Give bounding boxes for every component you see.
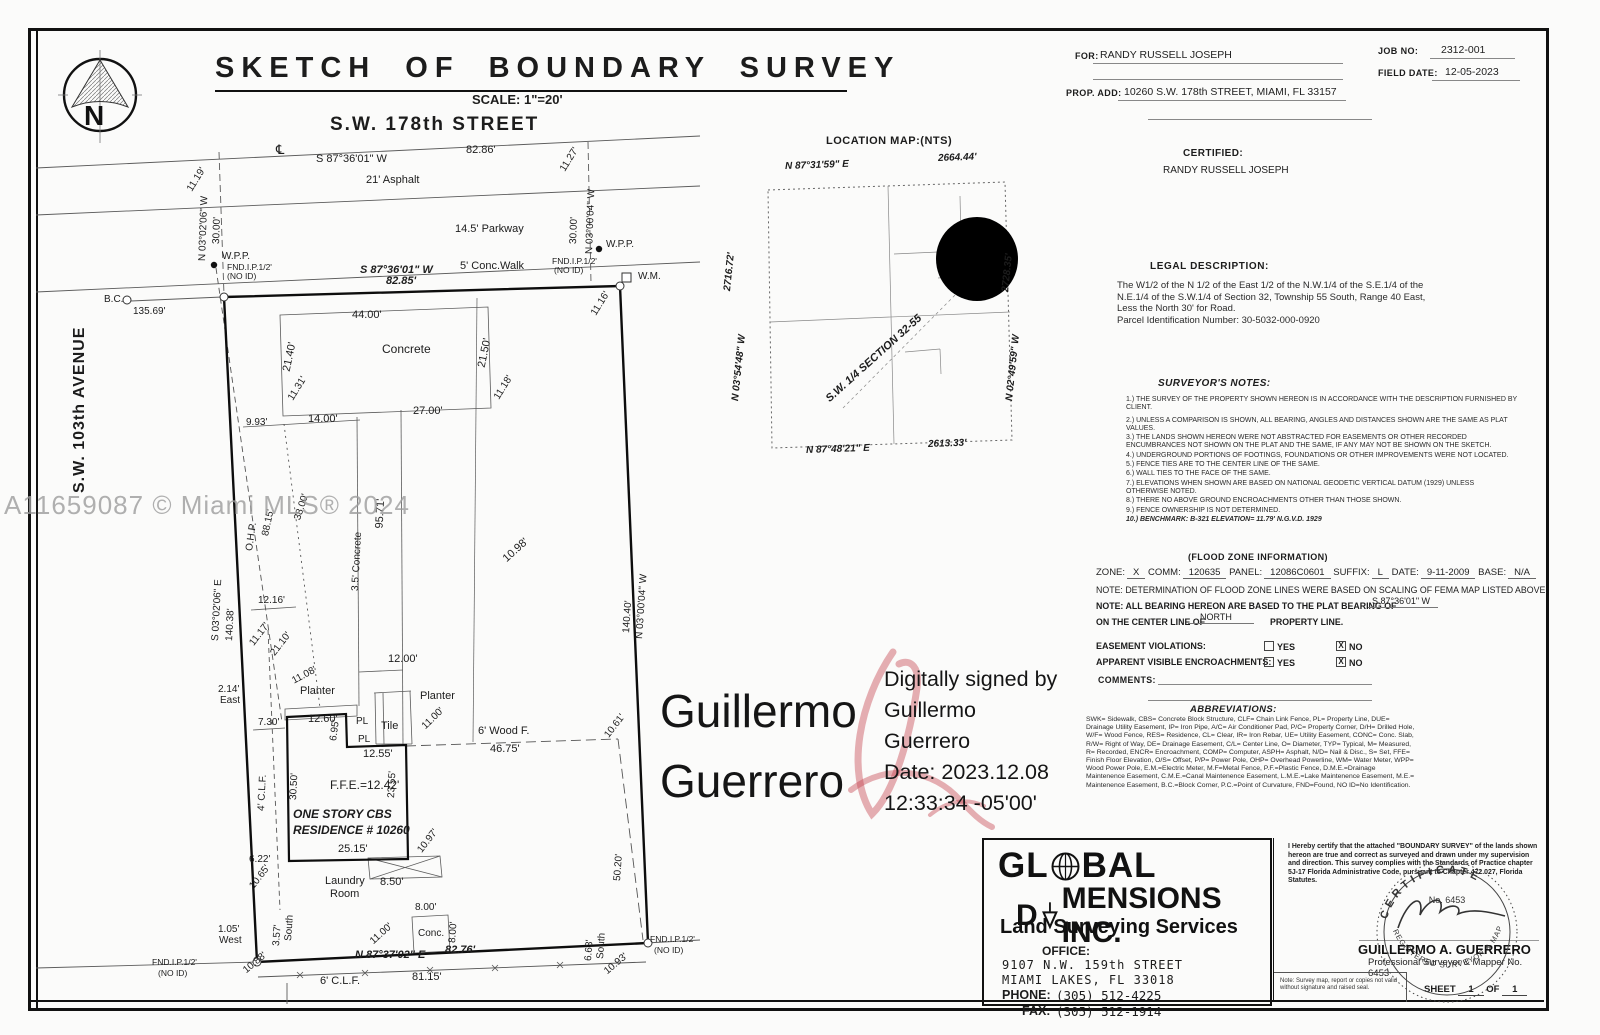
legal-line: Parcel Identification Number: 30-5032-00… (1117, 315, 1502, 327)
sketch-label: ONE STORY CBS (293, 808, 392, 820)
location-map-drawing (768, 182, 1018, 448)
company-name-gl: GL (998, 846, 1049, 886)
surveyor-note-item: 2.) UNLESS A COMPARISON IS SHOWN, ALL BE… (1126, 417, 1518, 434)
sketch-label: (NO ID) (158, 969, 187, 978)
sketch-label: 44.00' (352, 310, 382, 321)
company-box: GLBAL DMENSIONS INC. Land Surveying Serv… (982, 838, 1272, 1006)
sketch-label: N 87°37'02" E (355, 950, 425, 961)
sketch-label: 8.00' (415, 903, 436, 913)
surveyor-note-item: 9.) FENCE OWNERSHIP IS NOT DETERMINED. (1126, 507, 1518, 515)
job-underline (1430, 45, 1515, 59)
checkbox-row: APPARENT VISIBLE ENCROACHMENTS:YESXNO (1096, 657, 1416, 669)
checkbox-row: EASEMENT VIOLATIONS:YESXNO (1096, 641, 1416, 653)
flood-field-label: ZONE: (1096, 567, 1125, 578)
flood-field-value: N/A (1508, 567, 1536, 579)
sketch-label: 50.20' (613, 853, 625, 881)
certificate-box: I Hereby certify that the attached "BOUN… (1273, 838, 1544, 1002)
sketch-label: B.C. (104, 295, 123, 305)
flood-field-label: SUFFIX: (1333, 567, 1369, 578)
of-value: 1 (1502, 984, 1527, 996)
sketch-label: 14.00' (308, 414, 338, 425)
sketch-label: 12.55' (363, 749, 393, 760)
north-letter: N (84, 100, 104, 132)
fax-value: (305) 512-1914 (1056, 1004, 1161, 1019)
flood-field-label: BASE: (1478, 567, 1506, 578)
digital-signature-details: Digitally signed byGuillermoGuerreroDate… (884, 664, 1057, 819)
surveyor-name: GUILLERMO A. GUERRERO (1358, 942, 1531, 957)
surveyor-note-item: 1.) THE SURVEY OF THE PROPERTY SHOWN HER… (1126, 396, 1518, 413)
flood-centerline-suffix: PROPERTY LINE. (1270, 617, 1343, 627)
phone-label: PHONE: (1002, 988, 1051, 1002)
yes-label: YES (1277, 658, 1295, 668)
surveyor-note-item: 10.) BENCHMARK: B-321 ELEVATION= 11.79' … (1126, 516, 1518, 524)
surveyor-notes-list: 1.) THE SURVEY OF THE PROPERTY SHOWN HER… (1126, 396, 1518, 525)
office-address-line: 9107 N.W. 159th STREET (1002, 958, 1183, 973)
sketch-label: 30.00' (212, 216, 223, 243)
sheet-label: SHEET (1424, 984, 1456, 995)
sketch-label: 6' C.L.F. (320, 976, 360, 987)
sketch-label: 30.00' (569, 216, 580, 243)
sketch-label: 4' C.L.F. (257, 774, 269, 811)
digital-signature-detail-line: 12:33:34 -05'00' (884, 788, 1057, 819)
sketch-label: Conc. (418, 929, 444, 939)
digital-signature-detail-line: Guerrero (884, 726, 1057, 757)
for-blank-line (1093, 66, 1343, 80)
surveyor-note-item: 6.) WALL TIES TO THE FACE OF THE SAME. (1126, 470, 1518, 478)
flood-field-label: DATE: (1392, 567, 1419, 578)
sketch-label: S.W. 178th STREET (330, 115, 539, 134)
sketch-label: 14.5' Parkway (455, 224, 524, 235)
for-underline (1093, 50, 1343, 64)
scale-label: SCALE: 1"=20' (472, 92, 563, 107)
digital-signature-name-line1: Guillermo (660, 676, 857, 746)
office-label: OFFICE: (1042, 944, 1090, 958)
sketch-label: East (220, 696, 240, 706)
sketch-label: (NO ID) (554, 266, 583, 275)
sketch-label: Room (330, 889, 359, 900)
sketch-label: ℄ (276, 143, 284, 156)
comments-line2 (1148, 688, 1372, 701)
yes-checkbox (1264, 657, 1274, 667)
sketch-label: 3.57' (272, 924, 283, 946)
sketch-label: Tile (381, 721, 398, 732)
flood-fields-row: ZONE:X COMM:120635 PANEL:12086C0601 SUFF… (1096, 567, 1536, 578)
flood-field-value: 9-11-2009 (1421, 567, 1476, 579)
certified-value: RANDY RUSSELL JOSEPH (1163, 165, 1289, 176)
flood-field-label: COMM: (1148, 567, 1181, 578)
comments-line1 (1158, 672, 1372, 685)
sketch-label: 2.14' (218, 685, 239, 695)
sketch-label: 12.16' (258, 596, 285, 606)
flood-field-label: PANEL: (1229, 567, 1262, 578)
surveyor-note-item: 8.) THERE NO ABOVE GROUND ENCROACHMENTS … (1126, 497, 1518, 505)
sketch-label: Planter (420, 691, 455, 702)
sketch-label: 21' Asphalt (366, 175, 419, 186)
location-map-title: LOCATION MAP:(NTS) (826, 135, 952, 147)
no-checkbox: X (1336, 641, 1346, 651)
sketch-label: RESIDENCE # 10260 (293, 824, 410, 836)
comments-label: COMMENTS: (1098, 675, 1156, 685)
field-date-underline (1432, 67, 1520, 81)
yes-label: YES (1277, 642, 1295, 652)
sketch-label: W.M. (638, 272, 661, 282)
flood-field-value: X (1127, 567, 1145, 579)
page-title: SKETCH OF BOUNDARY SURVEY (215, 52, 847, 92)
legal-heading: LEGAL DESCRIPTION: (1150, 261, 1269, 272)
sketch-label: 135.69' (133, 307, 166, 317)
no-label: NO (1349, 658, 1363, 668)
sheet-row: SHEET 1 OF 1 (1424, 984, 1527, 995)
surveyor-note-item: 7.) ELEVATIONS WHEN SHOWN ARE BASED ON N… (1126, 480, 1518, 497)
sketch-label: 7.30' (258, 718, 279, 728)
digital-signature-detail-line: Guillermo (884, 695, 1057, 726)
sketch-label: South (596, 932, 608, 959)
note-divider-v (1406, 972, 1407, 1002)
sketch-label: 9.93' (246, 418, 267, 428)
prop-underline (1118, 87, 1346, 101)
office-address: 9107 N.W. 159th STREETMIAMI LAKES, FL 33… (1002, 958, 1183, 988)
sketch-label: FND.I.P.1/2' (152, 958, 197, 967)
sketch-label: 12.00' (388, 654, 418, 665)
flood-field-value: L (1372, 567, 1389, 579)
sketch-label: 8.00' (448, 921, 459, 943)
sketch-label: PL (358, 735, 370, 745)
yes-checkbox (1264, 641, 1274, 651)
flood-field-value: 120635 (1183, 567, 1227, 579)
office-address-line: MIAMI LAKES, FL 33018 (1002, 973, 1183, 988)
sketch-label: 6.63' (584, 939, 595, 961)
digital-signature-name: Guillermo Guerrero (660, 676, 857, 816)
sketch-label: 6.22' (249, 855, 270, 865)
surveyor-note-item: 4.) UNDERGROUND PORTIONS OF FOOTINGS, FO… (1126, 452, 1518, 460)
company-tagline: Land Surveying Services (1000, 916, 1238, 939)
company-name-bal: BAL (1082, 846, 1157, 886)
sketch-label: 1.05' (218, 925, 239, 935)
certificate-note: Note: Survey map, report or copies not v… (1280, 978, 1402, 992)
abbreviations-text: SWK= Sidewalk, CBS= Concrete Block Struc… (1086, 716, 1416, 790)
map-label: 2613.33' (928, 438, 967, 449)
sketch-label: (NO ID) (654, 946, 683, 955)
sketch-label: 46.75' (490, 744, 520, 755)
sketch-label: South (284, 914, 296, 941)
sketch-label: 140.38' (225, 608, 237, 641)
surveyor-note-item: 5.) FENCE TIES ARE TO THE CENTER LINE OF… (1126, 461, 1518, 469)
note-divider-h (1274, 972, 1406, 973)
flood-bearing-value: S 87°36'01" W (1368, 596, 1438, 608)
no-label: NO (1349, 642, 1363, 652)
sketch-label: S 87°36'01" W (316, 154, 387, 165)
signature-line (1359, 930, 1539, 941)
sketch-label: 27.00' (413, 406, 443, 417)
certified-heading: CERTIFIED: (1183, 148, 1243, 159)
legal-line: The W1/2 of the N 1/2 of the East 1/2 of… (1117, 280, 1502, 292)
surveyor-note-item: 3.) THE LANDS SHOWN HEREON WERE NOT ABST… (1126, 434, 1518, 451)
sketch-label: 25.15' (338, 844, 368, 855)
sketch-label: 6' Wood F. (478, 726, 529, 737)
sketch-label: 82.85' (386, 276, 416, 287)
sketch-label: PL (356, 717, 368, 727)
digital-signature-detail-line: Date: 2023.12.08 (884, 757, 1057, 788)
checkbox-row-label: EASEMENT VIOLATIONS: (1096, 641, 1206, 651)
flood-field-value: 12086C0601 (1264, 567, 1330, 579)
field-date-label: FIELD DATE: (1378, 68, 1438, 78)
checkbox-row-label: APPARENT VISIBLE ENCROACHMENTS: (1096, 657, 1271, 667)
flood-centerline-value: NORTH (1188, 612, 1254, 624)
prop-add-label: PROP. ADD: (1066, 88, 1122, 98)
legal-line: N.E.1/4 of the S.W.1/4 of Section 32, To… (1117, 292, 1502, 304)
sketch-label: 81.15' (412, 972, 442, 983)
sketch-label: 8.50' (380, 877, 404, 888)
sketch-label: F.F.E.=12.42' (330, 779, 399, 791)
sheet-value: 1 (1458, 984, 1483, 996)
sketch-label: West (219, 936, 242, 946)
globe-icon (1050, 851, 1081, 882)
sketch-label: Laundry (325, 876, 365, 887)
job-no-label: JOB NO: (1378, 46, 1418, 56)
sketch-label: W.P.P. (606, 240, 634, 250)
property-boundary (224, 286, 648, 962)
prop-blank-line (1148, 106, 1372, 120)
map-label: N 87°48'21" E (806, 443, 870, 455)
legal-line: Less the North 30' for Road. (1117, 303, 1502, 315)
sketch-label: 5' Conc.Walk (460, 261, 524, 272)
watermark: A11659087 © Miami MLS® 2024 (4, 490, 410, 521)
surveyor-notes-heading: SURVEYOR'S NOTES: (1158, 378, 1271, 389)
sketch-label: W.P.P. (222, 252, 250, 262)
flood-note1: NOTE: DETERMINATION OF FLOOD ZONE LINES … (1096, 585, 1548, 595)
no-checkbox: X (1336, 657, 1346, 667)
phone-value: (305) 512-4225 (1056, 988, 1161, 1003)
sketch-label: 82.76' (445, 945, 475, 956)
company-name-line1: GLBAL (998, 846, 1157, 886)
sketch-label: (NO ID) (227, 272, 256, 281)
sketch-label: S.W. 103th AVENUE (72, 326, 88, 492)
flood-bearing-label: NOTE: ALL BEARING HEREON ARE BASED TO TH… (1096, 601, 1396, 611)
abbreviations-heading: ABBREVIATIONS: (1190, 704, 1277, 715)
sketch-label: 82.86' (466, 145, 496, 156)
map-label: 2664.44' (938, 152, 977, 163)
sketch-label: Concrete (382, 343, 431, 355)
digital-signature-name-line2: Guerrero (660, 746, 857, 816)
legal-description: The W1/2 of the N 1/2 of the East 1/2 of… (1117, 280, 1502, 326)
fax-label: FAX: (1022, 1004, 1050, 1018)
sketch-label: Planter (300, 686, 335, 697)
sketch-label: FND.I.P.1/2' (650, 935, 695, 944)
of-label: OF (1486, 984, 1499, 995)
surveyor-title: Professional Surveyor & Mapper No. 6453 (1368, 957, 1544, 979)
map-label: N 87°31'59" E (785, 159, 849, 171)
certificate-statement: I Hereby certify that the attached "BOUN… (1288, 843, 1540, 886)
sketch-label: 30.50' (289, 772, 300, 799)
flood-heading: (FLOOD ZONE INFORMATION) (1188, 552, 1328, 562)
digital-signature-detail-line: Digitally signed by (884, 664, 1057, 695)
fence-lines (216, 268, 646, 978)
